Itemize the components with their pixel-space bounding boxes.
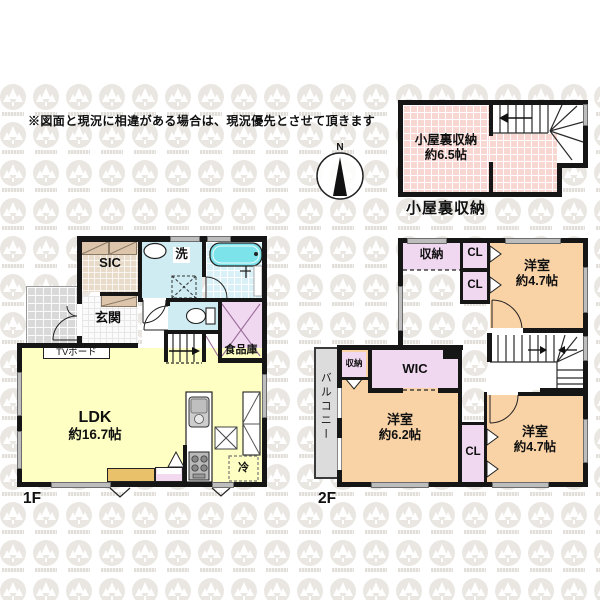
floor-title-1f: 1F xyxy=(23,490,41,509)
tv-board-label: TVボード xyxy=(43,347,110,358)
room-label-se: 洋室 約4.7帖 xyxy=(487,424,583,455)
wall xyxy=(218,358,267,363)
room-label-ne: 洋室 約4.7帖 xyxy=(492,258,582,289)
wall xyxy=(557,163,562,197)
door-triangle-kitchen xyxy=(168,452,184,467)
room-se-size: 約4.7帖 xyxy=(487,440,583,455)
wall xyxy=(523,328,588,333)
room-ne-size: 約4.7帖 xyxy=(492,274,582,289)
ldk-name: LDK xyxy=(25,408,165,427)
vent-marks xyxy=(110,488,230,497)
wall xyxy=(202,236,206,277)
cupboard-icon xyxy=(243,392,260,455)
stove-icon xyxy=(189,452,209,480)
floor-hatch-icon xyxy=(215,427,237,449)
room-label-cl1: CL xyxy=(463,247,487,261)
bathtub-icon xyxy=(210,243,262,266)
window xyxy=(52,483,110,487)
wall xyxy=(398,192,562,197)
wall xyxy=(443,345,458,359)
window xyxy=(18,373,21,415)
wall xyxy=(138,298,143,302)
disclaimer-text: ※図面と現況に相違がある場合は、現況優先とさせて頂きます xyxy=(28,114,375,128)
attic-stairs xyxy=(493,103,583,160)
room-sw-name: 洋室 xyxy=(342,412,458,428)
window xyxy=(399,287,402,330)
room-ne-name: 洋室 xyxy=(492,258,582,274)
wall xyxy=(489,103,493,136)
room-sw-size: 約6.2帖 xyxy=(342,428,458,443)
room-label-wic: WIC xyxy=(372,361,458,377)
wall xyxy=(487,238,490,304)
stairs-2f xyxy=(490,335,583,388)
window xyxy=(506,239,560,243)
room-label-storage-w: 収納 xyxy=(342,358,366,368)
fridge-label: 冷 xyxy=(229,462,258,475)
floor-plan-image: ※図面と現況に相違がある場合は、現況優先とさせて頂きます xyxy=(0,0,600,600)
wall xyxy=(166,298,267,302)
window xyxy=(208,237,230,241)
window xyxy=(18,432,21,468)
room-label-entrance: 玄関 xyxy=(79,310,137,326)
stairs-1f-arrow xyxy=(169,347,200,355)
room-label-sw: 洋室 約6.2帖 xyxy=(342,412,458,443)
toilet-icon xyxy=(187,308,216,324)
wall xyxy=(164,330,222,334)
counter xyxy=(107,468,155,482)
wall xyxy=(183,445,187,482)
shelf-hatch-lines xyxy=(82,242,136,306)
wall xyxy=(458,422,487,425)
door-opening xyxy=(490,328,523,333)
washer-space-icon xyxy=(172,276,196,298)
compass-north-label: N xyxy=(333,142,347,154)
stairs-2f-arrows xyxy=(528,346,577,354)
wall xyxy=(138,236,142,298)
wall xyxy=(463,300,490,304)
window xyxy=(372,483,428,487)
wall xyxy=(458,350,462,482)
ldk-size: 約16.7帖 xyxy=(25,427,165,443)
attic-room-label: 小屋裏収納 約6.5帖 xyxy=(400,133,492,163)
shower-icon xyxy=(240,266,251,278)
balcony-door xyxy=(337,438,342,470)
stairs-1f xyxy=(166,334,202,363)
cabinet-top xyxy=(157,468,181,474)
window xyxy=(213,483,233,487)
wall xyxy=(438,388,458,393)
plan-linework xyxy=(0,0,600,600)
wall xyxy=(77,296,82,304)
room-label-sic: SIC xyxy=(82,255,138,271)
room-se-name: 洋室 xyxy=(487,424,583,440)
washbasin-icon xyxy=(144,244,166,259)
window xyxy=(493,483,548,487)
wall xyxy=(164,334,168,362)
wall xyxy=(342,377,368,380)
wall xyxy=(368,388,403,393)
window xyxy=(263,375,266,417)
door-opening xyxy=(490,390,518,395)
wall xyxy=(398,100,588,105)
window xyxy=(584,337,587,360)
wall xyxy=(518,392,588,396)
window xyxy=(171,237,199,241)
wall xyxy=(166,298,170,306)
wall xyxy=(487,333,492,362)
room-label-storage-n: 収納 xyxy=(403,247,460,261)
floor-title-2f: 2F xyxy=(318,490,336,509)
attic-room-size: 約6.5帖 xyxy=(400,148,492,163)
kitchen-sink-icon xyxy=(189,397,209,427)
room-label-pantry: 食品庫 xyxy=(217,344,265,357)
window xyxy=(584,105,587,125)
room-label-cl2: CL xyxy=(463,279,487,293)
bath-counter xyxy=(254,266,262,296)
room-label-cl3: CL xyxy=(461,446,485,460)
room-label-balcony: バルコニー xyxy=(318,372,331,442)
room-label-ldk: LDK 約16.7帖 xyxy=(25,408,165,443)
room-label-laundry: 洗 xyxy=(173,247,190,263)
window xyxy=(584,268,587,312)
attic-room-name: 小屋裏収納 xyxy=(400,133,492,148)
window xyxy=(584,420,587,462)
wall xyxy=(463,268,490,272)
wall xyxy=(202,330,206,362)
window xyxy=(408,239,446,243)
wall xyxy=(100,292,138,296)
compass-icon xyxy=(317,153,363,199)
wall xyxy=(489,162,493,194)
attic-title: 小屋裏収納 xyxy=(406,200,486,218)
